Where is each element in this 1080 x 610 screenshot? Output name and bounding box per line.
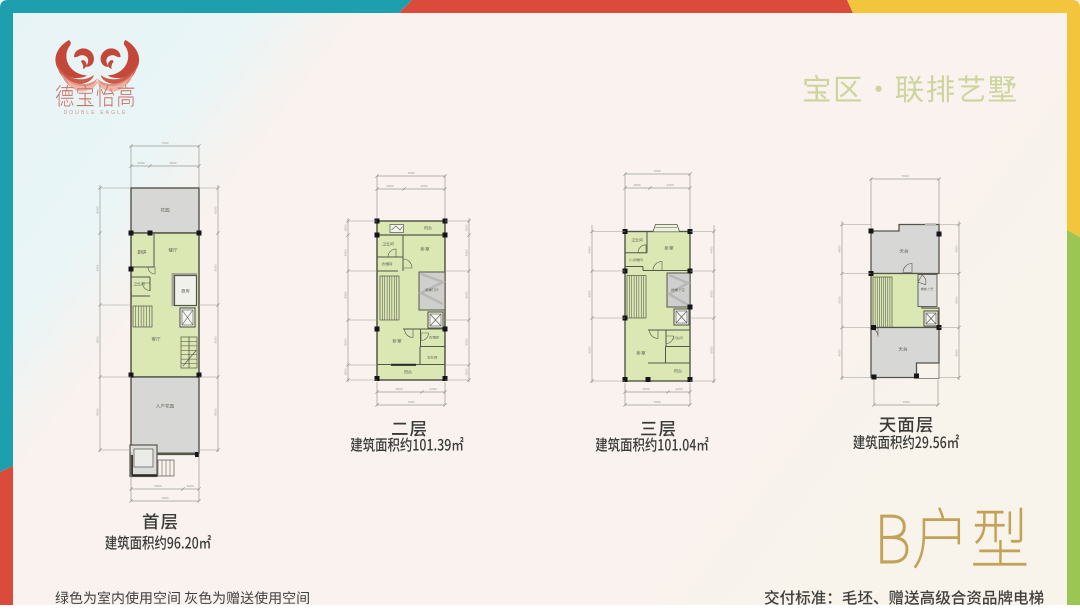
svg-text:5000: 5000 (465, 338, 469, 345)
svg-text:4400: 4400 (344, 249, 348, 256)
svg-text:4400: 4400 (465, 249, 469, 256)
svg-text:7000: 7000 (408, 400, 415, 404)
svg-text:4200: 4200 (421, 184, 428, 188)
svg-text:4400: 4400 (955, 245, 959, 252)
svg-text:4500: 4500 (643, 387, 650, 391)
svg-text:1500: 1500 (465, 224, 469, 231)
svg-text:4400: 4400 (96, 264, 100, 271)
svg-text:7000: 7000 (903, 400, 910, 404)
svg-text:6000: 6000 (588, 346, 592, 353)
svg-text:2400: 2400 (138, 161, 145, 165)
svg-text:7000: 7000 (162, 496, 169, 500)
svg-text:4200: 4200 (667, 183, 674, 187)
svg-text:5000: 5000 (214, 206, 218, 213)
svg-text:7000: 7000 (654, 400, 661, 404)
svg-text:1000: 1000 (187, 484, 194, 488)
svg-text:6000: 6000 (710, 346, 714, 353)
svg-text:7000: 7000 (408, 171, 415, 175)
svg-text:4600: 4600 (955, 349, 959, 356)
svg-text:3800: 3800 (588, 290, 592, 297)
svg-text:4500: 4500 (396, 387, 403, 391)
svg-text:1500: 1500 (96, 336, 100, 343)
svg-text:2200: 2200 (676, 387, 683, 391)
svg-text:9000: 9000 (465, 291, 469, 298)
svg-text:7000: 7000 (654, 169, 661, 173)
svg-text:1500: 1500 (344, 224, 348, 231)
svg-text:1500: 1500 (465, 368, 469, 375)
svg-text:DOUBLE EAGLE: DOUBLE EAGLE (64, 110, 128, 116)
svg-text:5000: 5000 (96, 206, 100, 213)
svg-text:3000: 3000 (214, 336, 218, 343)
svg-text:6000: 6000 (955, 296, 959, 303)
svg-text:5000: 5000 (344, 338, 348, 345)
svg-text:3000: 3000 (214, 264, 218, 271)
svg-text:4400: 4400 (588, 246, 592, 253)
svg-text:4600: 4600 (838, 349, 842, 356)
svg-text:2200: 2200 (430, 387, 437, 391)
svg-text:4400: 4400 (710, 246, 714, 253)
svg-text:8000: 8000 (214, 408, 218, 415)
svg-text:2800: 2800 (387, 184, 394, 188)
svg-text:7000: 7000 (902, 174, 909, 178)
svg-text:4800: 4800 (838, 245, 842, 252)
svg-text:9000: 9000 (710, 290, 714, 297)
svg-text:4600: 4600 (170, 161, 177, 165)
svg-text:8000: 8000 (96, 408, 100, 415)
svg-text:6000: 6000 (838, 296, 842, 303)
svg-text:7000: 7000 (162, 141, 169, 145)
svg-text:2800: 2800 (634, 183, 641, 187)
svg-text:3800: 3800 (344, 291, 348, 298)
svg-text:5800: 5800 (155, 484, 162, 488)
svg-text:1500: 1500 (344, 368, 348, 375)
